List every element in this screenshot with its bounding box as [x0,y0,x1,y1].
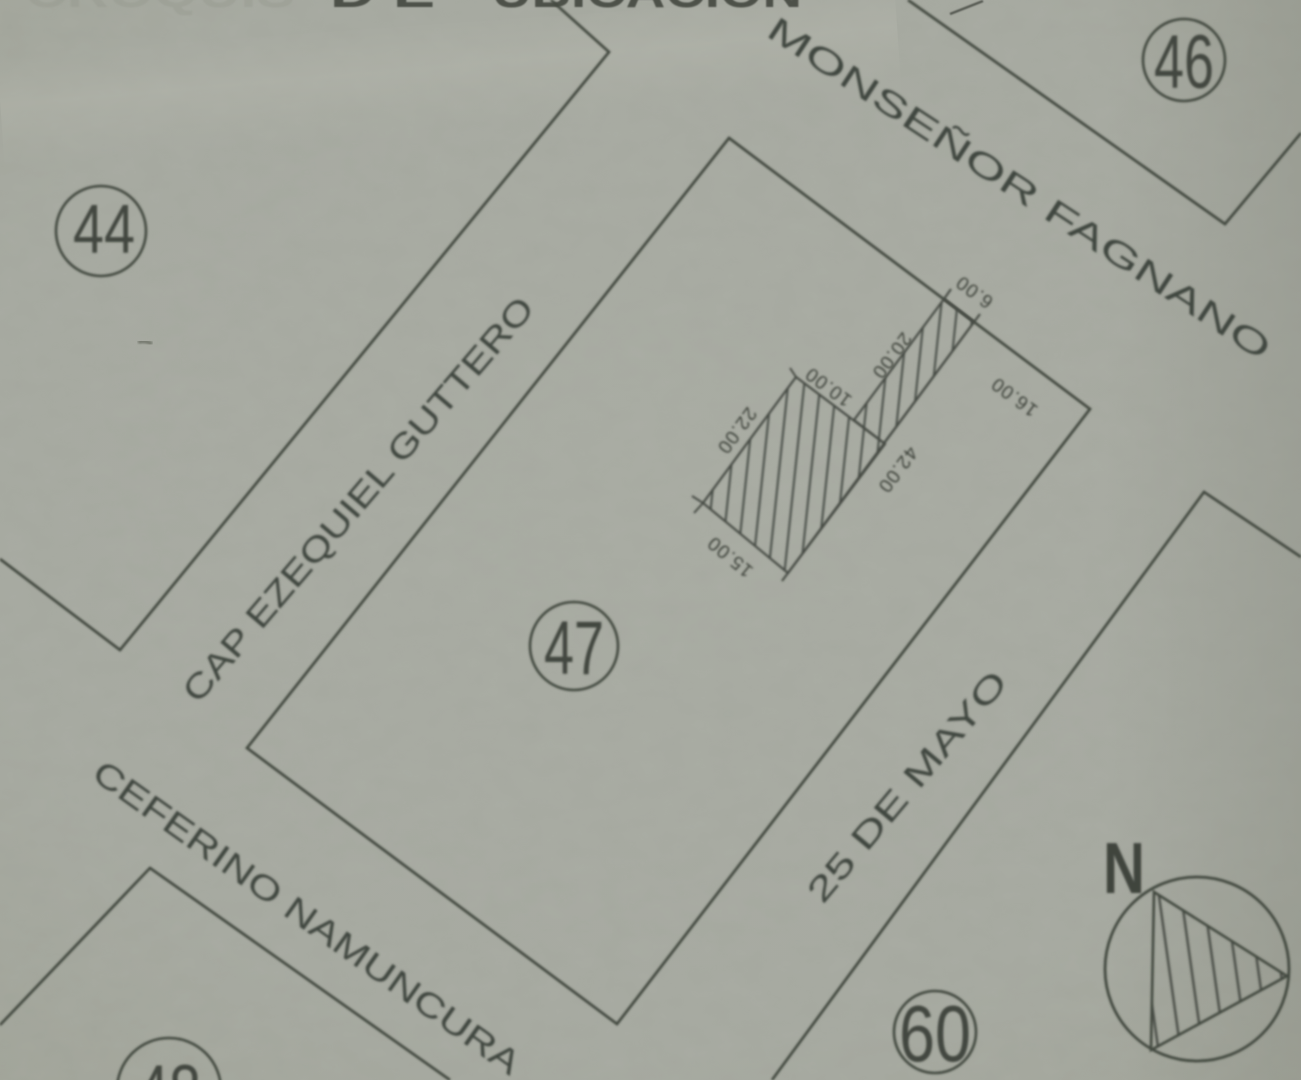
svg-text:48: 48 [137,1050,201,1080]
svg-text:UBICACIÓN: UBICACIÓN [492,0,802,17]
svg-text:60: 60 [899,989,971,1078]
svg-text:47: 47 [544,606,604,691]
svg-text:D E: D E [330,0,435,17]
svg-text:46: 46 [1154,20,1214,105]
svg-text:CROQUIS: CROQUIS [25,0,295,17]
svg-text:N: N [1103,829,1145,909]
svg-text:44: 44 [73,190,135,268]
